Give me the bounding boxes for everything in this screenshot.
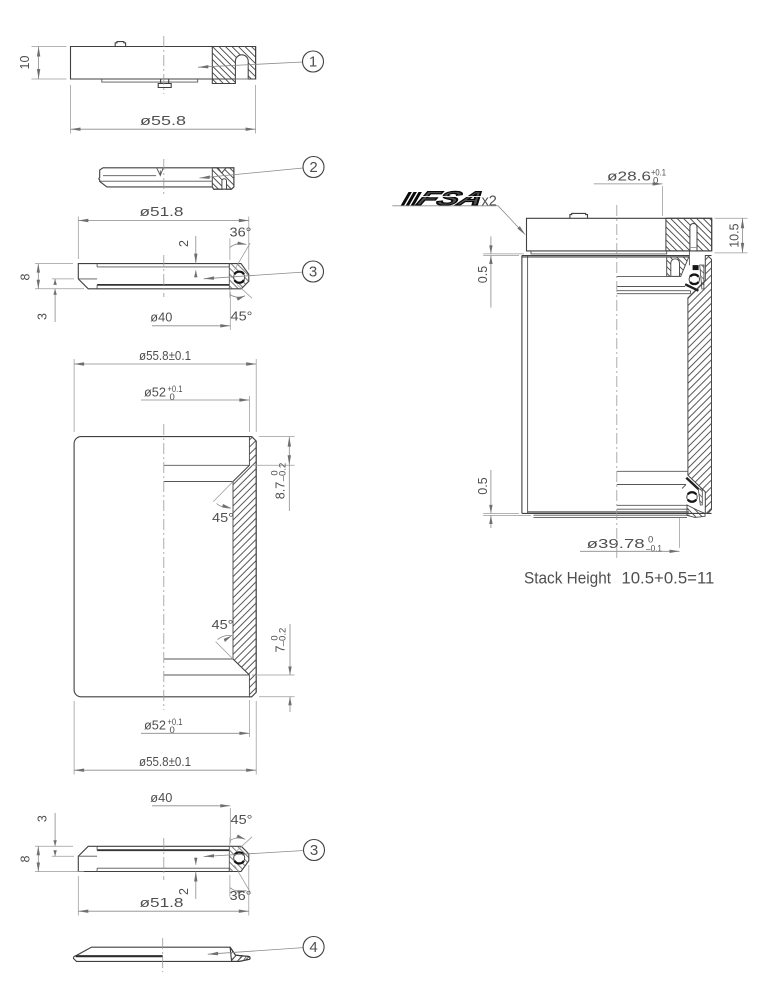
svg-text:0.5: 0.5 [476,266,490,283]
svg-text:ø51.8: ø51.8 [140,204,184,219]
svg-text:36°: 36° [230,226,252,240]
svg-text:–0.1: –0.1 [646,544,662,555]
svg-text:2: 2 [177,888,191,895]
svg-text:x2: x2 [482,194,497,210]
svg-text:0: 0 [653,176,658,187]
svg-text:ø40: ø40 [150,790,172,805]
svg-text:ø40: ø40 [150,309,172,324]
svg-text:3: 3 [36,313,50,320]
svg-text:8: 8 [19,273,33,280]
svg-text:45°: 45° [231,813,253,827]
svg-text:ø52: ø52 [144,384,166,399]
svg-text:ø52: ø52 [144,718,166,733]
svg-text:0: 0 [170,725,175,736]
svg-text:10.5: 10.5 [728,223,742,247]
svg-text:4: 4 [309,939,317,956]
svg-text:ø55.8±0.1: ø55.8±0.1 [139,754,191,769]
svg-text:ø51.8: ø51.8 [140,895,184,910]
svg-text:10: 10 [18,56,32,70]
svg-text:8: 8 [19,855,33,862]
svg-text:2: 2 [177,240,191,247]
svg-text:ø28.6: ø28.6 [607,168,651,183]
svg-text:0: 0 [170,392,175,403]
svg-text:1: 1 [309,54,317,71]
svg-text:3: 3 [36,815,50,822]
svg-text:36°: 36° [230,889,252,903]
svg-text:Stack Height: Stack Height [524,569,611,588]
svg-text:0.5: 0.5 [476,477,490,494]
svg-text:ø39.78: ø39.78 [587,536,645,551]
svg-text:10.5+0.5=11: 10.5+0.5=11 [621,569,714,588]
svg-text:ø55.8±0.1: ø55.8±0.1 [139,348,191,363]
svg-text:45°: 45° [212,618,234,632]
svg-text:FSA: FSA [413,188,489,209]
svg-text:45°: 45° [231,310,253,324]
svg-text:–0.2: –0.2 [278,628,289,647]
svg-text:3: 3 [310,842,318,859]
svg-text:8.7: 8.7 [274,482,288,499]
svg-text:3: 3 [309,264,317,281]
svg-text:2: 2 [309,159,317,176]
svg-text:ø55.8: ø55.8 [140,113,186,128]
svg-text:45°: 45° [212,511,234,525]
svg-text:–0.2: –0.2 [278,463,289,482]
